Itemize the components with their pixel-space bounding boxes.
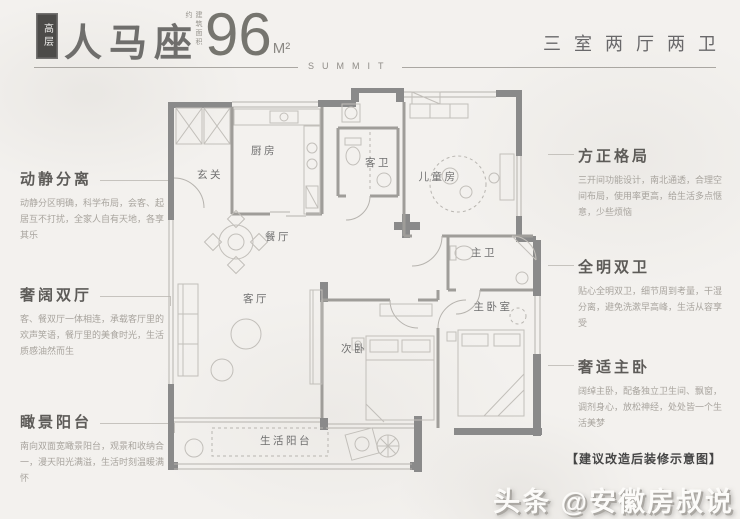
- feature-master-suite: 奢适主卧 阔绰主卧，配备独立卫生间、飘窗，调剂身心，放松神经，处处皆一个生活美梦: [578, 356, 730, 432]
- feature-desc: 贴心全明双卫，细节周到考量，干湿分离，避免洗漱早高峰，生活从容享受: [578, 283, 730, 332]
- entry-wardrobes: [176, 108, 230, 144]
- interior-walls: [232, 102, 533, 428]
- feature-title: 动静分离: [20, 168, 172, 189]
- windows: [169, 92, 540, 469]
- second-bedroom-furniture: [352, 304, 434, 422]
- area-unit: M²: [273, 40, 291, 57]
- room-label-kitchen: 厨房: [251, 144, 277, 157]
- renovation-note: 【建议改造后装修示意图】: [566, 450, 722, 467]
- room-label-master-bedroom: 主卧室: [474, 300, 513, 313]
- feature-title: 全明双卫: [578, 256, 730, 277]
- dining-set: [205, 211, 268, 274]
- room-label-kids-room: 儿童房: [419, 170, 458, 183]
- room-label-guest-bath: 客卫: [365, 156, 391, 169]
- feature-title: 方正格局: [578, 145, 730, 166]
- series-label: SUMMIT: [298, 61, 402, 71]
- room-label-living: 客厅: [243, 292, 269, 305]
- area-block: 建筑面积约 96 M²: [183, 6, 290, 63]
- room-labels: 玄关 厨房 客卫 儿童房 餐厅 客厅 次卧 主卫 主卧室 生活阳台: [197, 144, 513, 447]
- leader-line: [100, 180, 170, 181]
- feature-desc: 动静分区明确，科学布局，会客、起居互不打扰，全家人自有天地，各享其乐: [20, 195, 172, 244]
- watermark: 头条 @安徽房叔说: [493, 480, 734, 519]
- room-label-master-bath: 主卫: [471, 247, 497, 259]
- room-label-second-bedroom: 次卧: [341, 342, 367, 355]
- room-label-balcony: 生活阳台: [260, 434, 312, 447]
- feature-title: 奢阔双厅: [20, 284, 172, 305]
- master-bedroom-furniture: [447, 308, 526, 416]
- room-label-entry: 玄关: [197, 168, 223, 181]
- kids-room-furniture: [410, 104, 514, 212]
- feature-desc: 客、餐双厅一体相连，承载客厅里的欢声笑语，餐厅里的美食时光，生活质感油然而生: [20, 311, 172, 360]
- feature-title: 瞰景阳台: [20, 411, 172, 432]
- feature-square-layout: 方正格局 三开间功能设计，南北通透，合理空间布局，使用率更高，给生活多点惬意，少…: [578, 145, 730, 221]
- master-bath-fixtures: [450, 236, 536, 284]
- area-value: 96: [205, 6, 272, 63]
- floor-type-badge: 高层: [36, 13, 58, 59]
- page-title: 人马座: [64, 12, 199, 67]
- layout-spec: 三室两厅两卫: [543, 30, 729, 56]
- feature-title: 奢适主卧: [578, 356, 730, 377]
- flyer-page: 高层 人马座 建筑面积约 96 M² 三室两厅两卫 SUMMIT 动静分离 动静…: [0, 0, 740, 519]
- leader-line: [100, 296, 170, 297]
- leader-line: [100, 423, 174, 424]
- kitchen-fixtures: [234, 109, 320, 214]
- area-prefix-label: 建筑面积约: [183, 11, 203, 53]
- balcony-items: [185, 92, 440, 460]
- feature-desc: 南向双面宽瞰景阳台，观景和收纳合一，漫天阳光满溢，生活时刻温暖满怀: [20, 438, 172, 487]
- floor-plan: 玄关 厨房 客卫 儿童房 餐厅 客厅 次卧 主卫 主卧室 生活阳台: [166, 88, 556, 486]
- guest-bath-fixtures: [342, 104, 391, 192]
- feature-desc: 阔绰主卧，配备独立卫生间、飘窗，调剂身心，放松神经，处处皆一个生活美梦: [578, 383, 730, 432]
- room-label-dining: 餐厅: [265, 230, 291, 243]
- doors: [174, 178, 480, 328]
- feature-bright-baths: 全明双卫 贴心全明双卫，细节周到考量，干湿分离，避免洗漱早高峰，生活从容享受: [578, 256, 730, 332]
- feature-desc: 三开间功能设计，南北通透，合理空间布局，使用率更高，给生活多点惬意，少些烦恼: [578, 172, 730, 221]
